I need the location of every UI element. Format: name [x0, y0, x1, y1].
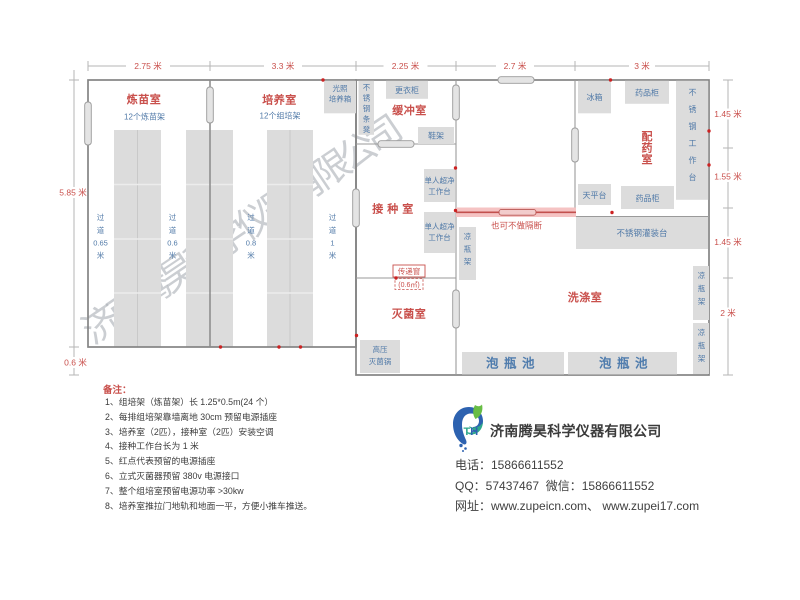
svg-text:凉瓶架: 凉瓶架 — [464, 231, 472, 266]
svg-text:过道1米: 过道1米 — [329, 212, 337, 260]
svg-text:过道0.65米: 过道0.65米 — [93, 212, 108, 260]
svg-text:灭菌室: 灭菌室 — [391, 307, 427, 321]
svg-text:单人超净: 单人超净 — [425, 175, 455, 185]
svg-text:1.55 米: 1.55 米 — [714, 172, 742, 182]
svg-text:配药室: 配药室 — [642, 129, 653, 166]
svg-text:工作台: 工作台 — [428, 232, 451, 242]
svg-text:不锈钢灌装台: 不锈钢灌装台 — [616, 228, 667, 238]
svg-text:灭菌锅: 灭菌锅 — [369, 356, 392, 366]
svg-text:3.3 米: 3.3 米 — [272, 61, 295, 71]
svg-text:12个炼苗架: 12个炼苗架 — [124, 112, 165, 122]
svg-text:凉瓶架: 凉瓶架 — [698, 270, 706, 306]
svg-text:泡瓶池: 泡瓶池 — [599, 356, 653, 371]
svg-text:接 种 室: 接 种 室 — [372, 202, 414, 216]
svg-text:更衣柜: 更衣柜 — [395, 85, 419, 95]
svg-text:过道0.6米: 过道0.6米 — [167, 212, 177, 260]
svg-text:也可不做隔断: 也可不做隔断 — [491, 221, 543, 231]
svg-text:培养室: 培养室 — [262, 93, 297, 107]
svg-text:光照: 光照 — [333, 83, 348, 93]
svg-text:天平台: 天平台 — [583, 190, 607, 200]
svg-text:药品柜: 药品柜 — [635, 88, 659, 98]
svg-text:泡瓶池: 泡瓶池 — [486, 356, 540, 371]
svg-text:2 米: 2 米 — [720, 308, 736, 318]
svg-text:工作台: 工作台 — [428, 186, 451, 196]
svg-text:高压: 高压 — [373, 344, 388, 354]
svg-text:药品柜: 药品柜 — [636, 193, 660, 203]
svg-text:培养箱: 培养箱 — [329, 94, 352, 104]
svg-text:3 米: 3 米 — [634, 61, 650, 71]
svg-text:传递窗: 传递窗 — [398, 266, 421, 276]
svg-text:凉瓶架: 凉瓶架 — [698, 327, 706, 363]
svg-text:不锈钢条凳: 不锈钢条凳 — [363, 83, 371, 134]
svg-text:0.6 米: 0.6 米 — [64, 358, 87, 368]
svg-text:2.7 米: 2.7 米 — [504, 61, 527, 71]
svg-text:洗涤室: 洗涤室 — [568, 290, 603, 304]
svg-text:5.85 米: 5.85 米 — [59, 188, 87, 198]
svg-text:2.25 米: 2.25 米 — [392, 61, 420, 71]
svg-text:炼苗室: 炼苗室 — [127, 92, 162, 106]
svg-text:(0.6㎡): (0.6㎡) — [398, 281, 419, 289]
svg-text:单人超净: 单人超净 — [425, 221, 455, 231]
svg-text:1.45 米: 1.45 米 — [714, 237, 742, 247]
svg-text:冰箱: 冰箱 — [587, 92, 603, 102]
svg-text:缓冲室: 缓冲室 — [392, 103, 427, 117]
svg-text:2.75 米: 2.75 米 — [134, 61, 162, 71]
svg-text:鞋架: 鞋架 — [428, 131, 444, 141]
svg-text:1.45 米: 1.45 米 — [714, 109, 742, 119]
svg-text:TH: TH — [464, 426, 479, 438]
svg-text:12个组培架: 12个组培架 — [260, 111, 301, 121]
svg-text:过道0.8米: 过道0.8米 — [246, 212, 256, 260]
